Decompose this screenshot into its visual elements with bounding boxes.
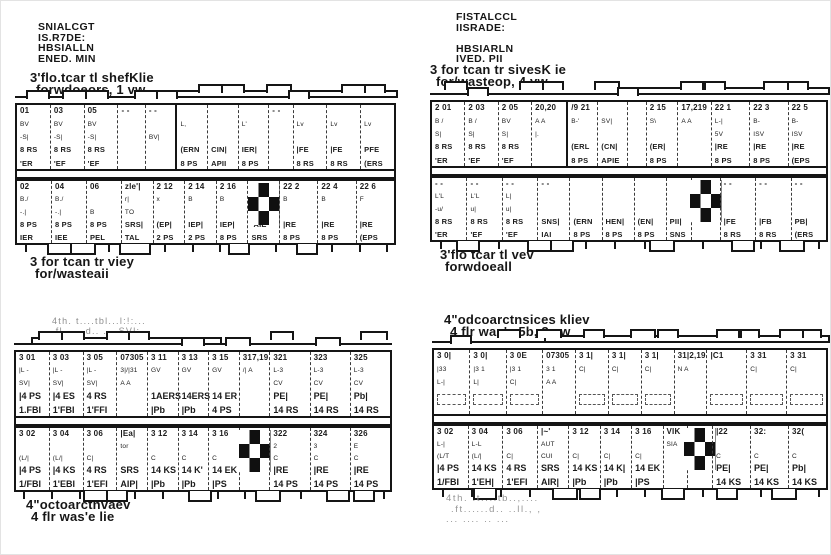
cabin-cell-line: BV| bbox=[149, 134, 175, 141]
cabin-cell-line bbox=[579, 405, 607, 413]
roof-vent-tab bbox=[26, 90, 50, 99]
cabin-cell-line: 8 PS bbox=[180, 160, 206, 168]
cabin-cell-line: |22 bbox=[716, 428, 749, 436]
cabin-cell-line bbox=[121, 134, 143, 141]
cabin-cell-line: PEL bbox=[90, 234, 120, 242]
cabin-cell-line bbox=[631, 104, 644, 112]
cabin-cell-line: 317,19 bbox=[243, 354, 269, 362]
cabin-cell: 3 16 C14 EK|PS bbox=[208, 428, 239, 490]
cabin-cell-line: 07305 bbox=[546, 352, 574, 360]
bottom-tick bbox=[818, 490, 820, 497]
cabin-cell-line: (L/T bbox=[437, 453, 467, 460]
cabin-cell-line bbox=[724, 193, 754, 200]
cabin-cell-line: 8 PS bbox=[753, 157, 786, 165]
cabin-cell: - - BV| bbox=[145, 105, 176, 169]
cabin-cell-line: |RE bbox=[283, 221, 316, 229]
text-line: IISRADE: bbox=[456, 23, 517, 34]
bottom-tick bbox=[644, 490, 646, 497]
cabin-cell-line bbox=[678, 379, 706, 386]
bottom-tick bbox=[760, 242, 762, 249]
cabin-cell: 3222C|RE14 PS bbox=[269, 428, 309, 490]
cabin-row: 2 01B /S|8 RS'ER2 03B /S|8 RS'EF2 05BVS|… bbox=[432, 100, 826, 168]
cabin-cell-line: 1/FBI bbox=[19, 480, 48, 489]
cabin-cell: 3 03|L -SV||4 ES1'FBI bbox=[49, 352, 83, 416]
cabin-cell-line: B bbox=[283, 196, 316, 203]
cabin-cell-line: 14 KS bbox=[151, 466, 177, 475]
cabin-cell-line: 4 RS bbox=[87, 466, 116, 475]
cabin-row: 3 02L-|(L/T|4 PS1/FBI3 04L-L(L/|14 KS1'E… bbox=[434, 425, 826, 490]
deck-divider bbox=[16, 418, 390, 427]
bottom-tab bbox=[661, 489, 685, 500]
cabin-cell-line: 'EF bbox=[468, 157, 496, 165]
cabin-cell-line: |RE bbox=[273, 466, 308, 475]
cabin-cell-line bbox=[681, 131, 709, 138]
cabin-cell-line: |RE bbox=[354, 466, 389, 475]
cabin-cell-line: C| bbox=[750, 366, 785, 373]
cabin-cell-line: 2 16 bbox=[220, 183, 247, 191]
cabin-cell-line: (EP| bbox=[157, 221, 184, 229]
cabin-cell-line: 20,20 bbox=[535, 104, 565, 112]
cabin-cell-line: Lv bbox=[297, 121, 326, 128]
cabin-cell-line: 07305 bbox=[120, 354, 146, 362]
cabin-cell: 2 05BVS|8 RS'EF bbox=[498, 102, 531, 166]
bottom-tick bbox=[585, 242, 587, 249]
cabin-cell-line bbox=[759, 193, 789, 200]
cabin-cell-line: 14 K' bbox=[182, 466, 208, 475]
cabin-cell-line: 325 bbox=[354, 354, 389, 362]
roof-vent-tab bbox=[630, 329, 656, 338]
cabin-cell-line: 'EF bbox=[506, 231, 536, 239]
cabin-cell-line bbox=[754, 441, 787, 448]
cabin-cell-line: 2 01 bbox=[435, 104, 463, 112]
cabin-cell-line bbox=[612, 405, 640, 413]
cabin-cell-line bbox=[691, 478, 711, 487]
cabin-cell-line: - - bbox=[149, 107, 175, 115]
cabin-cell-line: 3 1| bbox=[612, 352, 640, 360]
cabin-cell-line bbox=[541, 193, 568, 200]
cabin-cell-line: L| bbox=[473, 379, 504, 386]
cabin-cell-line bbox=[579, 379, 607, 386]
cabin-cell: 3 15GV 14 ER4 PS bbox=[208, 352, 239, 416]
cabin-cell-line bbox=[211, 121, 237, 128]
cabin-cell: 22 1L-|5V|RE8 PS bbox=[711, 102, 749, 166]
cabin-cell: 04B./-.|8 PSIEE bbox=[51, 181, 86, 243]
cabin-cell-line: 8 PS bbox=[55, 221, 85, 229]
roof-vent-tab bbox=[181, 337, 205, 346]
cabin-cell-line: A A bbox=[681, 118, 709, 125]
cabin-cell-line: r| bbox=[125, 196, 152, 203]
cabin-cell-line: 1/FBI bbox=[437, 478, 467, 487]
cabin-cell: - - SNS|IAI bbox=[537, 178, 569, 240]
cabin-cell-line: 8 RS bbox=[502, 143, 530, 151]
cabin-cell-line: C| bbox=[604, 453, 630, 460]
cabin-cell-line: B- bbox=[753, 118, 786, 125]
cabin-cell-line bbox=[19, 443, 48, 450]
cabin-cell-line: tor bbox=[120, 443, 146, 450]
dashed-box bbox=[710, 394, 743, 405]
cabin-cell-line: C| bbox=[572, 453, 598, 460]
cabin-cell-line: 8 RS bbox=[20, 146, 49, 154]
cabin-cell-line: - - bbox=[759, 180, 789, 188]
cabin-cell-line: 3 02 bbox=[19, 430, 48, 438]
dashed-box bbox=[612, 394, 638, 405]
cabin-cell-line bbox=[670, 206, 690, 213]
cabin-cell-line: PE| bbox=[754, 464, 787, 473]
cabin-cell-line: 8 RS bbox=[54, 146, 83, 154]
cabin-cell-line bbox=[120, 392, 146, 401]
cabin-cell-line: - - bbox=[121, 107, 143, 115]
cabin-cell-line: 8 PS bbox=[571, 157, 596, 165]
dashed-box bbox=[790, 394, 823, 405]
cabin-cell-line: F bbox=[360, 196, 393, 203]
cabin-cell-line: 3|/|31 bbox=[120, 367, 146, 374]
cabin-cell-line bbox=[157, 209, 184, 216]
cabin-cell-line: 'EF bbox=[54, 160, 83, 168]
cabin-cell-line bbox=[716, 441, 749, 448]
cabin-cell: 31|2,19N A bbox=[674, 350, 707, 414]
cabin-cell: 17,219A A bbox=[677, 102, 710, 166]
cabin-cell-line bbox=[724, 206, 754, 213]
cabin-cell: 3 13GV 14ERS|Pb bbox=[178, 352, 209, 416]
cabin-cell: 3 06 C|4 RS1'EFI bbox=[83, 428, 117, 490]
bottom-tick bbox=[614, 242, 616, 249]
cabin-cell-line: 3 02 bbox=[437, 428, 467, 436]
cabin-cell-line bbox=[631, 118, 644, 125]
cabin-cell-line: 3 11 bbox=[151, 354, 177, 362]
roof-vent-tab bbox=[85, 90, 109, 99]
cabin-cell-line: C bbox=[182, 455, 208, 462]
cabin-cell-line: 8 PS bbox=[638, 231, 665, 239]
cabin-cell-line: (ERL bbox=[571, 143, 596, 151]
cabin-cell-line: |FE bbox=[330, 146, 359, 154]
cabin-cell-line: (ERS bbox=[795, 231, 825, 239]
bottom-tick bbox=[134, 492, 136, 499]
cabin-cell-line bbox=[272, 121, 291, 128]
cabin-cell-line: - - bbox=[435, 180, 465, 188]
bottom-tab bbox=[771, 489, 797, 500]
bottom-tick bbox=[383, 492, 385, 499]
cabin-cell-line: BV bbox=[88, 121, 117, 128]
cabin-cell: 3243C|RE14 PS bbox=[310, 428, 350, 490]
cabin-cell-line: C bbox=[314, 455, 349, 462]
cabin-cell-line: 'EF bbox=[88, 160, 117, 168]
bottom-tick bbox=[818, 242, 820, 249]
cabin-cell-line bbox=[535, 143, 565, 151]
cabin-cell-line: 3 bbox=[314, 443, 349, 450]
cabin-cell-line: L-| bbox=[437, 441, 467, 448]
cabin-cell: 20,20A A|. bbox=[531, 102, 566, 166]
cabin-cell-line: B bbox=[188, 196, 215, 203]
cabin-cell: PII|SNS bbox=[666, 178, 691, 240]
cabin-cell-line: |Pb bbox=[151, 480, 177, 489]
cabin-cell-line: - - bbox=[541, 180, 568, 188]
cabin-cell: 3 01|L -SV||4 PS1.FBI bbox=[16, 352, 49, 416]
cabin-cell bbox=[239, 428, 270, 490]
roof-vent-tab bbox=[657, 329, 679, 338]
cabin-cell-line bbox=[321, 209, 354, 216]
cabin-cell: 22 2B |RE8 PS bbox=[279, 181, 317, 243]
cabin-cell-line: 14 KS bbox=[572, 464, 598, 473]
deck-strip-top-left: 01BV-S|8 RS'ER03BV-S|8 RS'EF05BV-S|8 RS'… bbox=[15, 103, 396, 245]
cabin-cell-line: (ERN bbox=[573, 218, 600, 226]
cabin-cell-line bbox=[546, 405, 574, 413]
cabin-cell-line: 1'EFI bbox=[506, 478, 536, 487]
diagram-bottom-left-caption: 4"octoarctnvaev4 flr was'e lie bbox=[26, 499, 131, 523]
cabin-cell-line bbox=[212, 443, 238, 450]
cabin-cell-line: PII| bbox=[670, 218, 690, 226]
cabin-cell: 2 14B IEP|2 PS bbox=[184, 181, 216, 243]
cabin-cell: SV| (CN|APIE bbox=[597, 102, 627, 166]
bottom-tick bbox=[386, 245, 388, 252]
cabin-cell-line: IEP| bbox=[188, 221, 215, 229]
cabin-cell-line: PE| bbox=[716, 464, 749, 473]
roof-vent-tab bbox=[450, 335, 472, 344]
cabin-cell: 2 16B IEP|8 PS bbox=[216, 181, 248, 243]
cabin-cell: - - bbox=[268, 105, 292, 169]
cabin-cell-line bbox=[535, 157, 565, 165]
cabin-cell-line: (ERN bbox=[180, 146, 206, 154]
cabin-cell-line bbox=[638, 180, 665, 188]
cabin-row: 3 01|L -SV||4 PS1.FBI3 03|L -SV||4 ES1'F… bbox=[16, 350, 390, 418]
cabin-cell-line: 04 bbox=[55, 183, 85, 191]
cabin-cell-line: C| bbox=[579, 366, 607, 373]
bottom-tab bbox=[649, 241, 675, 252]
cabin-cell: HEN|8 PS bbox=[602, 178, 634, 240]
roof-vent-tab bbox=[497, 329, 521, 338]
cabin-cell-line: |L - bbox=[19, 367, 48, 374]
cabin-cell-line: SRS bbox=[541, 464, 567, 473]
cabin-cell: (EN|8 PS bbox=[634, 178, 666, 240]
cabin-cell-line: 8 RS bbox=[470, 218, 500, 226]
roof-vent-tab bbox=[763, 81, 789, 90]
dashed-box bbox=[750, 394, 783, 405]
cabin-cell-line bbox=[645, 379, 673, 386]
cabin-cell: 3 04 (L/||4 KS1'EBI bbox=[49, 428, 83, 490]
cabin-cell-line: L'L bbox=[435, 193, 465, 200]
cabin-cell-line: |RE bbox=[360, 221, 393, 229]
stairs-icon bbox=[239, 430, 271, 472]
cabin-cell-line bbox=[606, 193, 633, 200]
cabin-cell-line bbox=[437, 405, 468, 413]
cabin-cell-line: C| bbox=[645, 366, 673, 373]
cabin-cell-line: |4 ES bbox=[53, 392, 82, 401]
cabin-cell-line: |4 PS bbox=[19, 392, 48, 401]
cabin-cell-line: 324 bbox=[314, 430, 349, 438]
stairs-icon bbox=[690, 180, 722, 222]
cabin-cell: 22 3B-ISV|RE8 PS bbox=[749, 102, 787, 166]
cabin-cell-line: 14 KS bbox=[716, 478, 749, 487]
cabin-cell-line: |L - bbox=[53, 367, 82, 374]
cabin-cell-line: 2 05 bbox=[502, 104, 530, 112]
cabin-cell: |~'AUTCUISRSAIR| bbox=[537, 426, 568, 488]
cabin-cell: - -L'Lu|8 RS'EF bbox=[466, 178, 501, 240]
cabin-cell-line bbox=[330, 134, 359, 141]
cabin-cell-line: B./ bbox=[20, 196, 50, 203]
cabin-cell: 3 02L-|(L/T|4 PS1/FBI bbox=[434, 426, 468, 488]
cabin-cell-line: B-' bbox=[571, 118, 596, 125]
cabin-cell-line: 14 KS bbox=[754, 478, 787, 487]
cabin-cell-line: CUI bbox=[541, 453, 567, 460]
cabin-cell-line: 8 RS bbox=[435, 218, 465, 226]
cabin-cell-line bbox=[681, 143, 709, 151]
cabin-cell: |22 CPE|14 KS bbox=[712, 426, 750, 488]
cabin-cell-line: -S| bbox=[88, 134, 117, 141]
cabin-cell-line bbox=[546, 391, 574, 399]
cabin-cell: 22 6F |RE(EPS bbox=[356, 181, 394, 243]
dashed-box bbox=[510, 394, 539, 405]
cabin-cell: 3 04L-L(L/|14 KS1'EH| bbox=[468, 426, 503, 488]
cabin-cell-line: IER| bbox=[242, 146, 268, 154]
roof-vent-tab bbox=[364, 84, 386, 93]
cabin-cell-line: C| bbox=[790, 366, 825, 373]
cabin-cell-line bbox=[364, 134, 393, 141]
cabin-cell-line: PE| bbox=[314, 392, 349, 401]
cabin-cell-line: L| bbox=[506, 193, 536, 200]
cabin-cell: 073053|/|31A A bbox=[116, 352, 147, 416]
cabin-cell-line bbox=[635, 441, 661, 448]
cabin-cell-line bbox=[297, 107, 326, 115]
bottom-tick bbox=[702, 242, 704, 249]
cabin-cell-line: L' bbox=[242, 121, 268, 128]
cabin-cell-line: C| bbox=[635, 453, 661, 460]
cabin-cell: - - PB|(ERS bbox=[791, 178, 826, 240]
roof-vent-tab bbox=[594, 81, 620, 90]
diagram-bottom-right-caption: 4th. .t....tb..,.....ft......d.. ..ll., … bbox=[446, 494, 542, 526]
cabin-cell-line bbox=[612, 379, 640, 386]
cabin-cell-line: 14 RS bbox=[273, 406, 308, 415]
cabin-cell-line: 1AERS bbox=[151, 392, 177, 401]
cabin-cell-line: 3 16 bbox=[635, 428, 661, 436]
cabin-cell-line: BV bbox=[20, 121, 49, 128]
cabin-cell-line: AUT bbox=[541, 441, 567, 448]
cabin-cell-line: ISV bbox=[792, 131, 825, 138]
cabin-cell: 05BV-S|8 RS'EF bbox=[84, 105, 118, 169]
cabin-cell-line: N A bbox=[678, 366, 706, 373]
cabin-cell-line: |~' bbox=[541, 428, 567, 436]
diagram-top-left: SNIALCGTIS.R7DE:HBSIALLNENED. MIN 3'flo.… bbox=[15, 103, 396, 243]
dashed-box bbox=[645, 394, 671, 405]
cabin-cell-line: (EPS bbox=[792, 157, 825, 165]
cabin-cell: 3 0||3 1L| bbox=[469, 350, 505, 414]
bottom-tab bbox=[731, 241, 755, 252]
cabin-cell-line: 'EF bbox=[502, 157, 530, 165]
cabin-cell-line: |Pb bbox=[151, 406, 177, 415]
cabin-cell: 321L-3CVPE|14 RS bbox=[269, 352, 309, 416]
cabin-cell-line: 05 bbox=[88, 107, 117, 115]
cabin-cell-line: 14 KS bbox=[472, 464, 502, 473]
cabin-cell-line: (ER| bbox=[650, 143, 677, 151]
roof-vent-tab bbox=[288, 90, 310, 99]
cabin-cell-line: BV bbox=[54, 121, 83, 128]
cabin-cell-line: S\ bbox=[650, 118, 677, 125]
cabin-cell-line bbox=[121, 121, 143, 128]
roof-vent-tab bbox=[617, 87, 639, 96]
cabin-cell: 3 1|C| bbox=[575, 350, 608, 414]
cabin-cell-line: IEE bbox=[55, 234, 85, 242]
cabin-cell-line: IAI bbox=[541, 231, 568, 239]
cabin-cell-line: SRS| bbox=[125, 221, 152, 229]
cabin-cell-line bbox=[606, 206, 633, 213]
cabin-cell: 3 02 (L/||4 PS1/FBI bbox=[16, 428, 49, 490]
cabin-cell-line bbox=[243, 480, 269, 489]
cabin-cell-line: 8 RS bbox=[330, 160, 359, 168]
bottom-tab bbox=[188, 491, 212, 502]
cabin-cell-line: HEN| bbox=[606, 218, 633, 226]
cabin-cell-line: 8 RS bbox=[724, 231, 754, 239]
cabin-cell: 02B./-.|8 PSIER bbox=[17, 181, 51, 243]
dashed-box bbox=[437, 394, 466, 405]
cabin-cell-line: 8 RS bbox=[297, 160, 326, 168]
cabin-cell-line: |3 1 bbox=[473, 366, 504, 373]
cabin-cell-line bbox=[297, 134, 326, 141]
cabin-cell-line: 22 6 bbox=[360, 183, 393, 191]
bottom-tick bbox=[108, 245, 110, 252]
cabin-cell-line bbox=[670, 180, 690, 188]
cabin-cell-line bbox=[631, 131, 644, 138]
diagram-top-left-caption: 3 for tcan tr vieyfor/wasteaii bbox=[30, 256, 134, 280]
cabin-cell: - -L'L-u/8 RS'ER bbox=[432, 178, 466, 240]
cabin-cell: 22 4B |RE8 PS bbox=[317, 181, 355, 243]
cabin-cell-line: 3 14 bbox=[604, 428, 630, 436]
text-line: ENED. MIN bbox=[38, 54, 96, 65]
cabin-cell-line: - - bbox=[470, 180, 500, 188]
cabin-cell-line: SRS bbox=[120, 466, 146, 475]
cabin-cell: 2 01B /S|8 RS'ER bbox=[432, 102, 464, 166]
roof-vent-tab bbox=[221, 84, 245, 93]
cabin-cell-line: 1'EH| bbox=[472, 478, 502, 487]
cabin-cell-line bbox=[638, 206, 665, 213]
cabin-cell-line: 3 03 bbox=[53, 354, 82, 362]
cabin-cell-line: 31|2,19 bbox=[678, 352, 706, 360]
cabin-cell-line: SV| bbox=[53, 380, 82, 387]
cabin-cell: 323L-3CVPE|14 RS bbox=[310, 352, 350, 416]
scanned-deck-plan-page: SNIALCGTIS.R7DE:HBSIALLNENED. MIN 3'flo.… bbox=[0, 0, 831, 555]
cabin-cell-line: C| bbox=[612, 366, 640, 373]
cabin-cell: 3 31C| bbox=[746, 350, 786, 414]
cabin-cell-line bbox=[750, 379, 785, 386]
cabin-cell: 2 03B /S|8 RS'EF bbox=[464, 102, 497, 166]
cabin-cell-line: (EN| bbox=[638, 218, 665, 226]
cabin-cell: |Ea|tor SRSAIP| bbox=[116, 428, 147, 490]
cabin-cell: 01BV-S|8 RS'ER bbox=[17, 105, 50, 169]
cabin-cell-line bbox=[473, 405, 504, 413]
roof-vent-tab bbox=[444, 81, 468, 90]
roof-vent-tab bbox=[542, 81, 564, 90]
cabin-cell-line: -u/ bbox=[435, 206, 465, 213]
diagram-bottom-left: 4th. t....tbl...l:!:....fl......d.. ... … bbox=[14, 350, 392, 490]
cabin-cell-line: S| bbox=[468, 131, 496, 138]
cabin-cell-line bbox=[180, 134, 206, 141]
cabin-cell-line: Pb| bbox=[792, 464, 825, 473]
cabin-cell-line: AIR| bbox=[541, 478, 567, 487]
cabin-cell-line: 3 04 bbox=[53, 430, 82, 438]
text-line: SNIALCGT bbox=[38, 22, 96, 33]
text-line bbox=[456, 33, 517, 44]
cabin-cell: 'AIESRS bbox=[247, 181, 279, 243]
cabin-cell-line bbox=[180, 107, 206, 115]
cabin-cell-line bbox=[710, 366, 745, 373]
cabin-cell-line: C| bbox=[506, 453, 536, 460]
cabin-cell-line bbox=[243, 406, 269, 415]
cabin-cell: 3 16 C|14 EK|PS bbox=[631, 426, 662, 488]
cabin-cell-line bbox=[667, 478, 687, 487]
cabin-cell-line bbox=[670, 193, 690, 200]
cabin-cell-line: 14 RS bbox=[314, 406, 349, 415]
cabin-cell-line bbox=[272, 160, 291, 168]
cabin-cell-line bbox=[606, 180, 633, 188]
cabin-cell-line: u| bbox=[470, 206, 500, 213]
cabin-cell-line: 8 PS bbox=[220, 234, 247, 242]
